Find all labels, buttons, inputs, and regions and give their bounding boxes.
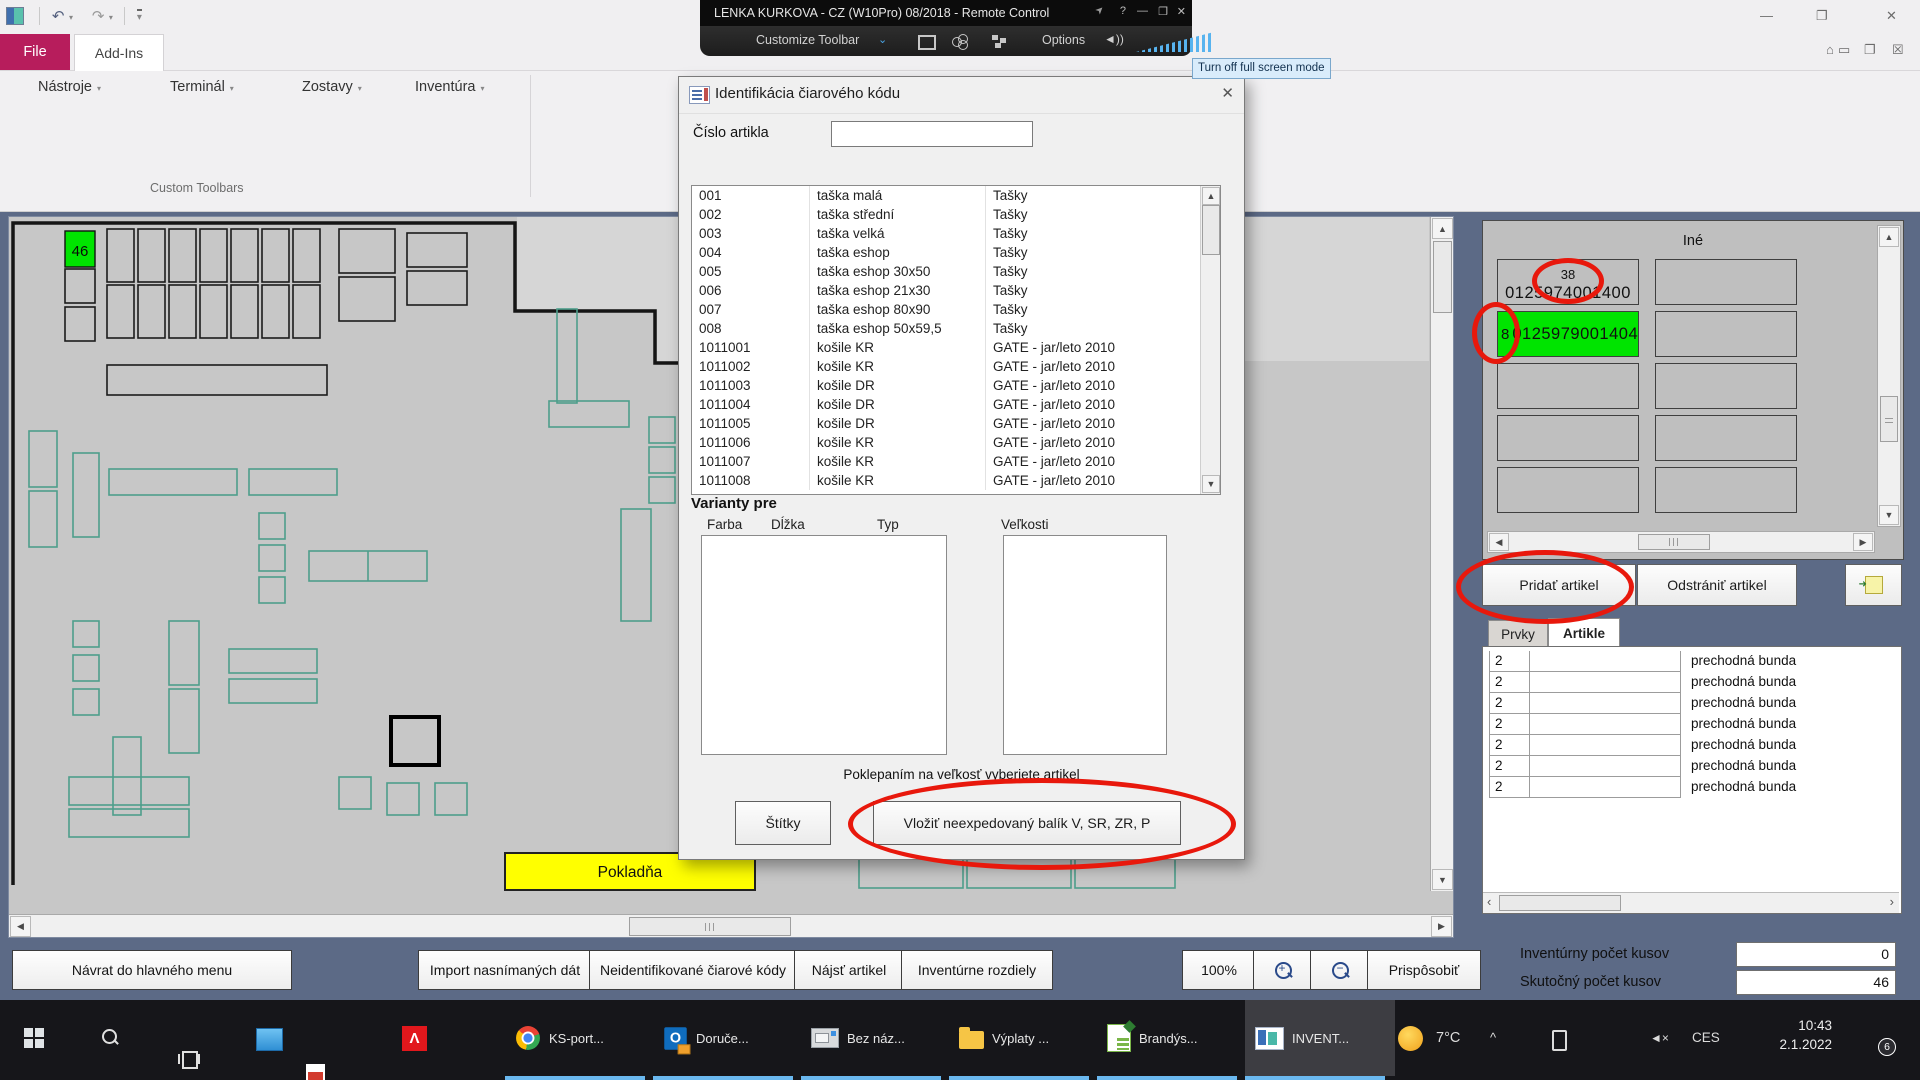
velkosti-label: Veľkosti xyxy=(1001,517,1048,532)
empty-cell xyxy=(1530,714,1681,735)
variants-listbox[interactable] xyxy=(701,535,947,755)
chevron-down-icon: ▾ xyxy=(358,84,362,93)
skutocny-label: Skutočný počet kusov xyxy=(1520,974,1661,990)
app-label: Výplaty ... xyxy=(992,1031,1049,1046)
scroll-left-icon[interactable]: ◀ xyxy=(10,916,31,937)
view-circles-icon[interactable] xyxy=(952,34,972,48)
undo-dropdown-icon[interactable]: ▾ xyxy=(69,13,73,22)
marker-label: 46 xyxy=(72,243,89,260)
import-button[interactable]: Import nasnímaných dát xyxy=(418,950,592,990)
name-cell: prechodná bunda xyxy=(1681,672,1897,693)
speaker-icon[interactable]: ◄)) xyxy=(1104,32,1124,46)
article-row[interactable]: 1011008košile KRGATE - jar/leto 2010 xyxy=(692,471,1200,490)
remote-control-bar: LENKA KURKOVA - CZ (W10Pro) 08/2018 - Re… xyxy=(700,0,1192,56)
article-row[interactable]: 1011001košile KRGATE - jar/leto 2010 xyxy=(692,338,1200,357)
varianty-header: Varianty pre xyxy=(691,495,777,512)
artikle-horizontal-scrollbar[interactable]: ‹ › xyxy=(1483,892,1899,913)
doc-restore-icon[interactable]: ❐ xyxy=(1864,42,1876,58)
barcode-box-selected[interactable]: 8 0125979001404 xyxy=(1497,311,1639,357)
remote-titlebar[interactable]: LENKA KURKOVA - CZ (W10Pro) 08/2018 - Re… xyxy=(700,0,1192,26)
article-listbox[interactable]: 001taška maláTašky 002taška středníTašky… xyxy=(691,185,1221,495)
vlozit-balik-button[interactable]: Vložiť neexpedovaný balík V, SR, ZR, P xyxy=(873,801,1181,845)
scroll-left-icon[interactable]: ‹ xyxy=(1487,894,1491,909)
artikle-row[interactable]: 2prechodná bunda xyxy=(1489,714,1897,735)
zoom-in-icon: + xyxy=(1275,962,1292,979)
running-indicator xyxy=(949,1076,1089,1080)
options-button[interactable]: Options xyxy=(1042,33,1085,47)
article-row[interactable]: 003taška velkáTašky xyxy=(692,224,1200,243)
start-button[interactable] xyxy=(24,1028,44,1053)
scroll-right-icon[interactable]: ▶ xyxy=(1853,533,1873,551)
customize-toolbar-button[interactable]: Customize Toolbar xyxy=(756,33,859,47)
barcode-box[interactable] xyxy=(1655,259,1797,305)
inventurne-rozdiely-button[interactable]: Inventúrne rozdiely xyxy=(901,950,1053,990)
artikle-row[interactable]: 2prechodná bunda xyxy=(1489,735,1897,756)
inventory-app-icon xyxy=(1255,1027,1284,1050)
pinned-app-window-icon[interactable] xyxy=(256,1028,283,1051)
inventurny-field[interactable]: 0 xyxy=(1736,942,1896,967)
running-indicator xyxy=(1097,1076,1237,1080)
article-row[interactable]: 1011007košile KRGATE - jar/leto 2010 xyxy=(692,452,1200,471)
navrat-button[interactable]: Návrat do hlavného menu xyxy=(12,950,292,990)
chevron-down-icon: ▾ xyxy=(480,84,484,93)
app-minimize-icon[interactable]: — xyxy=(1760,8,1773,23)
scroll-left-icon[interactable]: ◀ xyxy=(1489,533,1509,551)
article-row[interactable]: 005taška eshop 30x50Tašky xyxy=(692,262,1200,281)
article-row[interactable]: 1011002košile KRGATE - jar/leto 2010 xyxy=(692,357,1200,376)
taskbar-app-dorucene[interactable]: O Doruče... xyxy=(653,1000,803,1076)
taskbar-app-ks-portal[interactable]: KS-port... xyxy=(505,1000,655,1076)
scroll-thumb[interactable] xyxy=(1638,534,1710,550)
barcode-box[interactable] xyxy=(1655,467,1797,513)
empty-cell xyxy=(1530,735,1681,756)
skutocny-field[interactable]: 46 xyxy=(1736,970,1896,995)
scroll-down-icon[interactable]: ▼ xyxy=(1879,505,1899,525)
map-horizontal-scrollbar[interactable]: ◀ ▶ xyxy=(9,914,1453,937)
inventurny-label: Inventúrny počet kusov xyxy=(1520,946,1669,962)
barcode-box[interactable] xyxy=(1655,311,1797,357)
arrow-icon: ➜ xyxy=(1859,579,1867,590)
typ-label: Typ xyxy=(877,517,899,532)
pin-icon[interactable]: ➤ xyxy=(1093,4,1107,18)
menu-zostavy[interactable]: Zostavy▾ xyxy=(302,79,362,95)
article-row[interactable]: 1011005košile DRGATE - jar/leto 2010 xyxy=(692,414,1200,433)
pdf-app-icon[interactable] xyxy=(306,1064,325,1080)
running-indicator xyxy=(801,1076,941,1080)
temperature[interactable]: 7°C xyxy=(1436,1030,1460,1046)
artikle-row[interactable]: 2prechodná bunda xyxy=(1489,651,1897,672)
ine-horizontal-scrollbar[interactable]: ◀ ▶ xyxy=(1487,531,1875,553)
app-restore-icon[interactable]: ❐ xyxy=(1816,8,1828,24)
article-row[interactable]: 002taška středníTašky xyxy=(692,205,1200,224)
time: 10:43 xyxy=(1742,1018,1832,1033)
name-cell: prechodná bunda xyxy=(1681,651,1897,672)
empty-cell xyxy=(1530,777,1681,798)
qty-cell: 2 xyxy=(1489,777,1530,798)
close-icon[interactable]: ✕ xyxy=(1221,84,1234,102)
dialog-titlebar[interactable]: Identifikácia čiarového kódu ✕ xyxy=(679,77,1244,114)
barcode-box[interactable] xyxy=(1497,415,1639,461)
clock[interactable]: 10:43 2.1.2022 xyxy=(1742,1018,1832,1052)
taskbar-app-vyplaty[interactable]: Výplaty ... xyxy=(949,1000,1099,1076)
home-icon[interactable]: ⌂ xyxy=(1826,42,1834,57)
doc-minimize-icon[interactable]: ▭ xyxy=(1838,42,1850,58)
scroll-up-icon[interactable]: ▲ xyxy=(1879,227,1899,247)
app-label: Bez náz... xyxy=(847,1031,905,1046)
artikle-row[interactable]: 2prechodná bunda xyxy=(1489,672,1897,693)
pokladna-label: Pokladňa xyxy=(598,864,663,881)
prisposobit-button[interactable]: Prispôsobiť xyxy=(1367,950,1481,990)
barcode-code: 0125974001400 xyxy=(1498,284,1638,303)
ine-panel: Iné 38 0125974001400 8 0125979001404 ▲ ▼… xyxy=(1482,220,1904,560)
red-a-app-icon[interactable]: Λ xyxy=(402,1026,427,1051)
zoom-out-button[interactable]: − xyxy=(1310,950,1370,990)
artikle-row[interactable]: 2prechodná bunda xyxy=(1489,756,1897,777)
menu-nastroje[interactable]: Nástroje▾ xyxy=(38,79,101,95)
taskbar-app-inventura-active[interactable]: INVENT... xyxy=(1245,1000,1395,1076)
weather-sun-icon[interactable] xyxy=(1398,1026,1423,1051)
menu-terminal[interactable]: Terminál▾ xyxy=(170,79,234,95)
name-cell: prechodná bunda xyxy=(1681,735,1897,756)
app-label: Doruče... xyxy=(696,1031,749,1046)
scroll-right-icon[interactable]: ▶ xyxy=(1431,916,1452,937)
hidden-icons-chevron[interactable]: ^ xyxy=(1490,1030,1496,1045)
close-icon[interactable]: ✕ xyxy=(1177,5,1186,18)
qty-cell: 2 xyxy=(1489,693,1530,714)
barcode-box[interactable] xyxy=(1497,363,1639,409)
screen: ↶ ▾ ↷ ▾ ▾ — ❐ ✕ File Add-Ins ⌂ ▭ ❐ ☒ Nás… xyxy=(0,0,1920,1080)
chevron-down-icon[interactable]: ⌄ xyxy=(878,33,887,46)
article-row[interactable]: 001taška maláTašky xyxy=(692,186,1200,205)
name-cell: prechodná bunda xyxy=(1681,777,1897,798)
chevron-down-icon: ▾ xyxy=(97,84,101,93)
envelope-badge xyxy=(678,1044,691,1054)
running-indicator xyxy=(505,1076,645,1080)
doc-close-icon[interactable]: ☒ xyxy=(1892,42,1904,58)
article-row[interactable]: 1011004košile DRGATE - jar/leto 2010 xyxy=(692,395,1200,414)
phone-tray-icon[interactable] xyxy=(1552,1030,1567,1051)
running-indicator xyxy=(653,1076,793,1080)
undo-icon[interactable]: ↶ xyxy=(52,7,65,25)
scroll-thumb[interactable] xyxy=(1499,895,1621,911)
article-row[interactable]: 1011006košile KRGATE - jar/leto 2010 xyxy=(692,433,1200,452)
dialog-title: Identifikácia čiarového kódu xyxy=(715,85,900,102)
barcode-count: 38 xyxy=(1498,267,1638,282)
dlzka-label: Dĺžka xyxy=(771,517,805,532)
barcode-prefix: 8 xyxy=(1501,326,1509,343)
app-icon xyxy=(6,7,24,25)
cislo-artikla-input[interactable] xyxy=(831,121,1033,147)
app-label: KS-port... xyxy=(549,1031,604,1046)
dialog-hint: Poklepaním na veľkosť vyberiete artikel xyxy=(679,767,1244,782)
tab-add-ins[interactable]: Add-Ins xyxy=(74,34,164,71)
article-row[interactable]: 006taška eshop 21x30Tašky xyxy=(692,281,1200,300)
barcode-box[interactable] xyxy=(1655,415,1797,461)
separator xyxy=(124,7,125,25)
taskbar: Λ O KS-port... O Doruče... Bez náz... Vý… xyxy=(0,1000,1920,1080)
ine-vertical-scrollbar[interactable]: ▲ ▼ xyxy=(1877,225,1901,527)
separator xyxy=(39,7,40,25)
muted-speaker-icon[interactable]: ◄× xyxy=(1650,1031,1669,1045)
form-icon xyxy=(689,86,710,104)
scroll-up-icon[interactable]: ▲ xyxy=(1202,187,1220,205)
barcode-box[interactable] xyxy=(1497,467,1639,513)
running-indicator xyxy=(1245,1076,1385,1080)
apps-grid-icon[interactable] xyxy=(992,35,1006,48)
artikle-list: 2prechodná bunda 2prechodná bunda 2prech… xyxy=(1482,646,1902,914)
help-icon[interactable]: ? xyxy=(1120,5,1126,17)
avast-letter: Λ xyxy=(409,1030,419,1047)
search-button[interactable] xyxy=(100,1028,120,1048)
article-row[interactable]: 008taška eshop 50x59,5Tašky xyxy=(692,319,1200,338)
scroll-thumb[interactable] xyxy=(1433,241,1452,313)
zoom-in-button[interactable]: + xyxy=(1253,950,1313,990)
tab-file[interactable]: File xyxy=(0,34,70,70)
windows-logo-icon xyxy=(24,1028,44,1048)
app-close-icon[interactable]: ✕ xyxy=(1886,8,1897,24)
stitky-button[interactable]: Štítky xyxy=(735,801,831,845)
redo-dropdown-icon[interactable]: ▾ xyxy=(109,13,113,22)
remote-toolbar: Customize Toolbar ⌄ Options ◄)) xyxy=(700,26,1192,56)
language-indicator[interactable]: CES xyxy=(1692,1030,1720,1045)
odstranit-artikel-button[interactable]: Odstrániť artikel xyxy=(1637,564,1797,606)
identifikacia-dialog: Identifikácia čiarového kódu ✕ Číslo art… xyxy=(678,76,1245,860)
empty-cell xyxy=(1530,651,1681,672)
map-vertical-scrollbar[interactable]: ▲ ▼ xyxy=(1430,217,1453,891)
article-list-scrollbar[interactable]: ▲ ▼ xyxy=(1200,186,1220,494)
artikle-row[interactable]: 2prechodná bunda xyxy=(1489,777,1897,798)
window-select-icon[interactable] xyxy=(918,35,936,50)
scroll-up-icon[interactable]: ▲ xyxy=(1432,218,1453,239)
outlook-icon: O xyxy=(664,1027,687,1050)
ribbon-group-separator xyxy=(530,75,531,197)
najst-artikel-button[interactable]: Nájsť artikel xyxy=(794,950,904,990)
remote-title: LENKA KURKOVA - CZ (W10Pro) 08/2018 - Re… xyxy=(714,6,1049,20)
zoom-out-icon: − xyxy=(1332,962,1349,979)
date: 2.1.2022 xyxy=(1742,1037,1832,1052)
tab-artikle[interactable]: Artikle xyxy=(1548,618,1620,648)
note-icon: ➜ xyxy=(1865,576,1883,594)
empty-cell xyxy=(1530,756,1681,777)
barcode-code: 0125979001404 xyxy=(1512,325,1638,344)
article-row[interactable]: 1011003košile DRGATE - jar/leto 2010 xyxy=(692,376,1200,395)
notification-badge: 6 xyxy=(1878,1038,1896,1056)
fullscreen-tooltip: Turn off full screen mode xyxy=(1192,58,1331,79)
barcode-box[interactable]: 38 0125974001400 xyxy=(1497,259,1639,305)
neidentifikovane-button[interactable]: Neidentifikované čiarové kódy xyxy=(589,950,797,990)
zoom-level-display: 100% xyxy=(1182,950,1256,990)
scroll-right-icon[interactable]: › xyxy=(1890,894,1894,909)
minimize-icon[interactable]: — xyxy=(1137,5,1148,17)
empty-cell xyxy=(1530,672,1681,693)
pridat-artikel-button[interactable]: Pridať artikel xyxy=(1482,564,1636,606)
menu-inventura[interactable]: Inventúra▾ xyxy=(415,79,484,95)
scroll-down-icon[interactable]: ▼ xyxy=(1202,475,1220,493)
qty-cell: 2 xyxy=(1489,735,1530,756)
spreadsheet-icon xyxy=(1107,1024,1131,1052)
article-row[interactable]: 004taška eshopTašky xyxy=(692,243,1200,262)
ribbon-group-label: Custom Toolbars xyxy=(150,181,244,195)
artikle-row[interactable]: 2prechodná bunda xyxy=(1489,693,1897,714)
scroll-thumb[interactable] xyxy=(1880,396,1898,442)
app-label: Brandýs... xyxy=(1139,1031,1198,1046)
qty-cell: 2 xyxy=(1489,756,1530,777)
app-label: INVENT... xyxy=(1292,1031,1349,1046)
name-cell: prechodná bunda xyxy=(1681,693,1897,714)
scroll-down-icon[interactable]: ▼ xyxy=(1432,869,1453,890)
restore-icon[interactable]: ❐ xyxy=(1158,5,1168,18)
sizes-listbox[interactable] xyxy=(1003,535,1167,755)
farba-label: Farba xyxy=(707,517,742,532)
taskbar-app-brandys[interactable]: Brandýs... xyxy=(1097,1000,1247,1076)
barcode-box[interactable] xyxy=(1655,363,1797,409)
name-cell: prechodná bunda xyxy=(1681,714,1897,735)
export-note-button[interactable]: ➜ xyxy=(1845,564,1902,606)
scroll-thumb[interactable] xyxy=(1202,205,1220,255)
empty-cell xyxy=(1530,693,1681,714)
qty-cell: 2 xyxy=(1489,651,1530,672)
audio-level-bars xyxy=(1136,32,1214,52)
chrome-icon xyxy=(516,1026,540,1050)
chevron-down-icon: ▾ xyxy=(230,84,234,93)
customize-quick-access-icon[interactable]: ▾ xyxy=(137,9,142,23)
scroll-thumb[interactable] xyxy=(629,917,791,936)
folder-icon xyxy=(959,1031,984,1049)
qty-cell: 2 xyxy=(1489,714,1530,735)
document-window-icon xyxy=(811,1028,839,1048)
task-view-button[interactable] xyxy=(178,1050,200,1068)
ine-title: Iné xyxy=(1483,221,1903,249)
article-row[interactable]: 007taška eshop 80x90Tašky xyxy=(692,300,1200,319)
taskbar-app-bez-nazvu[interactable]: Bez náz... xyxy=(801,1000,951,1076)
name-cell: prechodná bunda xyxy=(1681,756,1897,777)
redo-icon[interactable]: ↷ xyxy=(92,7,105,25)
qty-cell: 2 xyxy=(1489,672,1530,693)
tab-prvky[interactable]: Prvky xyxy=(1488,620,1548,648)
cislo-artikla-label: Číslo artikla xyxy=(693,125,769,141)
